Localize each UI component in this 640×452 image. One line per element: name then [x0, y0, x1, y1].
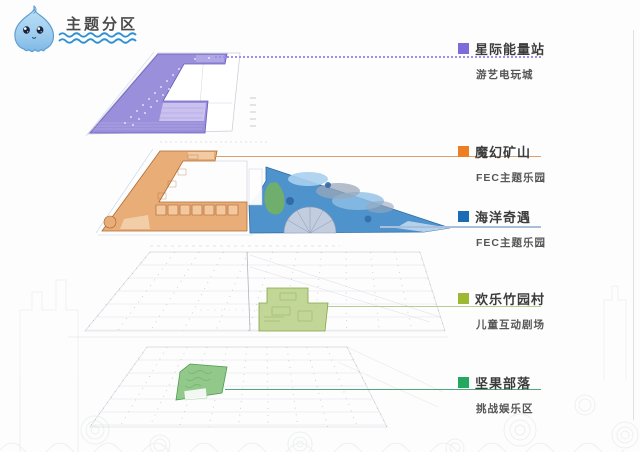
legend-sublabel: FEC主题乐园 — [476, 235, 568, 250]
legend-label: 坚果部落 — [475, 373, 531, 392]
legend-item-bamboo: 欢乐竹园村 儿童互动剧场 — [458, 289, 568, 332]
bamboo-village-plan — [50, 247, 450, 337]
legend-swatch-magic-mine — [458, 146, 469, 157]
legend-sublabel: 挑战娱乐区 — [476, 401, 568, 416]
legend-sublabel: 儿童互动剧场 — [476, 317, 568, 332]
legend-label: 星际能量站 — [475, 39, 545, 58]
legend-swatch-ocean — [458, 211, 469, 222]
legend-label: 魔幻矿山 — [475, 142, 531, 161]
starlight-energy-station-plan — [28, 46, 268, 142]
legend-item-magic-mine: 魔幻矿山 FEC主题乐园 — [458, 142, 568, 185]
legend-item-starlight: 星际能量站 游艺电玩城 — [458, 39, 568, 82]
legend-swatch-starlight — [458, 43, 469, 54]
legend-swatch-nut — [458, 377, 469, 388]
legend-sublabel: FEC主题乐园 — [476, 170, 568, 185]
legend-item-ocean: 海洋奇遇 FEC主题乐园 — [458, 207, 568, 250]
legend-label: 欢乐竹园村 — [475, 289, 545, 308]
legend-swatch-bamboo — [458, 293, 469, 304]
legend-label: 海洋奇遇 — [475, 207, 531, 226]
slide-right-border — [633, 30, 634, 420]
slide: 主题分区 — [0, 0, 640, 452]
title-waves-icon — [58, 31, 138, 45]
nut-tribe-plan — [38, 332, 450, 440]
legend-item-nut: 坚果部落 挑战娱乐区 — [458, 373, 568, 416]
legend-sublabel: 游艺电玩城 — [476, 67, 568, 82]
